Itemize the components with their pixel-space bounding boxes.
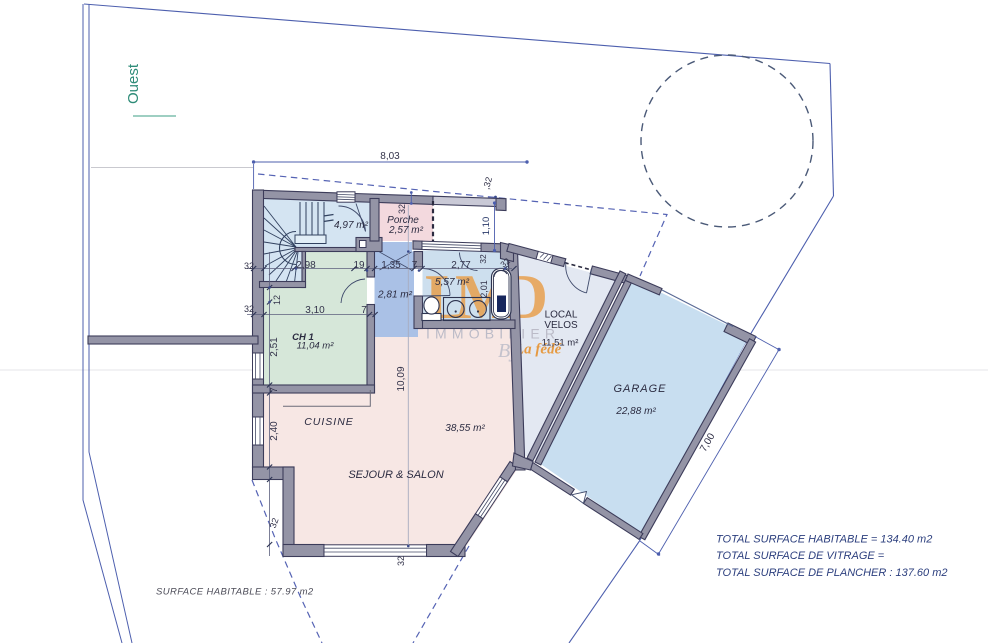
svg-text:CUISINE: CUISINE — [304, 416, 354, 428]
svg-text:2,40: 2,40 — [269, 421, 280, 441]
svg-text:GARAGE: GARAGE — [613, 383, 666, 395]
svg-text:32: 32 — [244, 304, 254, 314]
svg-text:7: 7 — [361, 305, 367, 316]
svg-text:19: 19 — [353, 260, 365, 271]
svg-text:11,51 m²: 11,51 m² — [542, 338, 579, 349]
svg-text:11,04 m²: 11,04 m² — [297, 341, 335, 352]
svg-text:2,77: 2,77 — [451, 260, 471, 271]
svg-text:2,98: 2,98 — [296, 260, 316, 271]
svg-text:32: 32 — [478, 254, 488, 264]
svg-text:1,35: 1,35 — [381, 260, 401, 271]
svg-text:32: 32 — [268, 517, 281, 530]
svg-text:32: 32 — [244, 261, 254, 271]
svg-text:1,10: 1,10 — [481, 217, 492, 236]
svg-text:SEJOUR & SALON: SEJOUR & SALON — [348, 469, 443, 481]
svg-text:TOTAL SURFACE DE PLANCHER : 13: TOTAL SURFACE DE PLANCHER : 137.60 m2 — [716, 567, 947, 579]
svg-text:2,51: 2,51 — [269, 337, 280, 357]
svg-text:TOTAL SURFACE DE VITRAGE =: TOTAL SURFACE DE VITRAGE = — [716, 550, 885, 562]
svg-text:10,09: 10,09 — [396, 366, 407, 391]
svg-text:32: 32 — [397, 204, 407, 214]
svg-text:2,57 m²: 2,57 m² — [388, 225, 424, 236]
svg-text:7: 7 — [412, 260, 418, 271]
svg-text:38,55 m²: 38,55 m² — [445, 423, 485, 434]
svg-text:LOCAL: LOCAL — [545, 310, 578, 321]
svg-text:32: 32 — [396, 556, 406, 566]
svg-text:VELOS: VELOS — [544, 320, 578, 331]
svg-text:2,01: 2,01 — [479, 280, 489, 298]
svg-text:2,81 m²: 2,81 m² — [377, 290, 413, 301]
svg-text:7: 7 — [269, 387, 280, 393]
svg-text:8,03: 8,03 — [380, 151, 400, 162]
svg-text:SURFACE HABITABLE : 57.97 m2: SURFACE HABITABLE : 57.97 m2 — [156, 587, 314, 598]
svg-text:5,57 m²: 5,57 m² — [435, 277, 470, 288]
svg-text:Ouest: Ouest — [125, 63, 142, 104]
svg-text:TOTAL SURFACE HABITABLE = 134.: TOTAL SURFACE HABITABLE = 134.40 m2 — [716, 534, 932, 546]
svg-text:3,10: 3,10 — [305, 305, 325, 316]
svg-text:4,97 m²: 4,97 m² — [334, 220, 369, 231]
svg-text:,32: ,32 — [481, 176, 494, 191]
svg-text:22,88 m²: 22,88 m² — [615, 406, 656, 417]
svg-text:12: 12 — [272, 295, 282, 305]
